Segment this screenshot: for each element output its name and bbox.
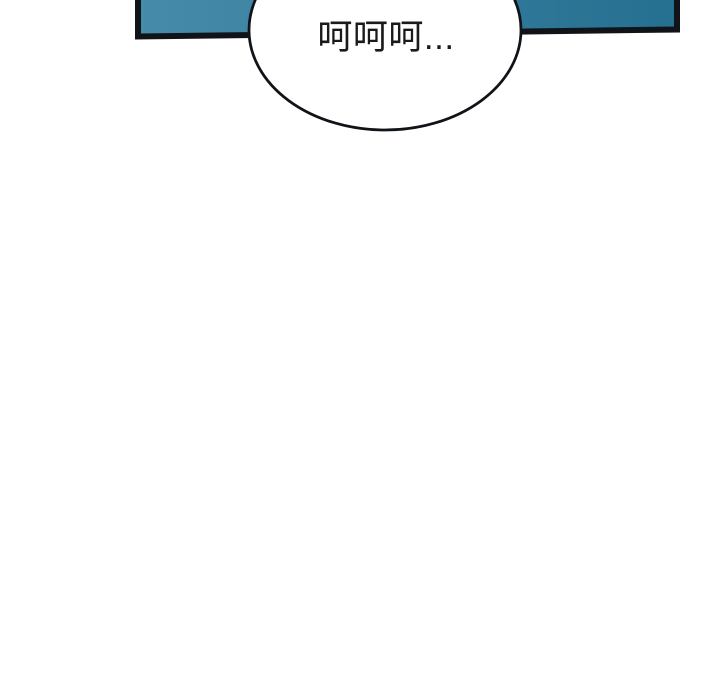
comic-page: 呵呵呵... [0, 0, 720, 700]
speech-bubble-text: 呵呵呵... [250, 19, 522, 56]
